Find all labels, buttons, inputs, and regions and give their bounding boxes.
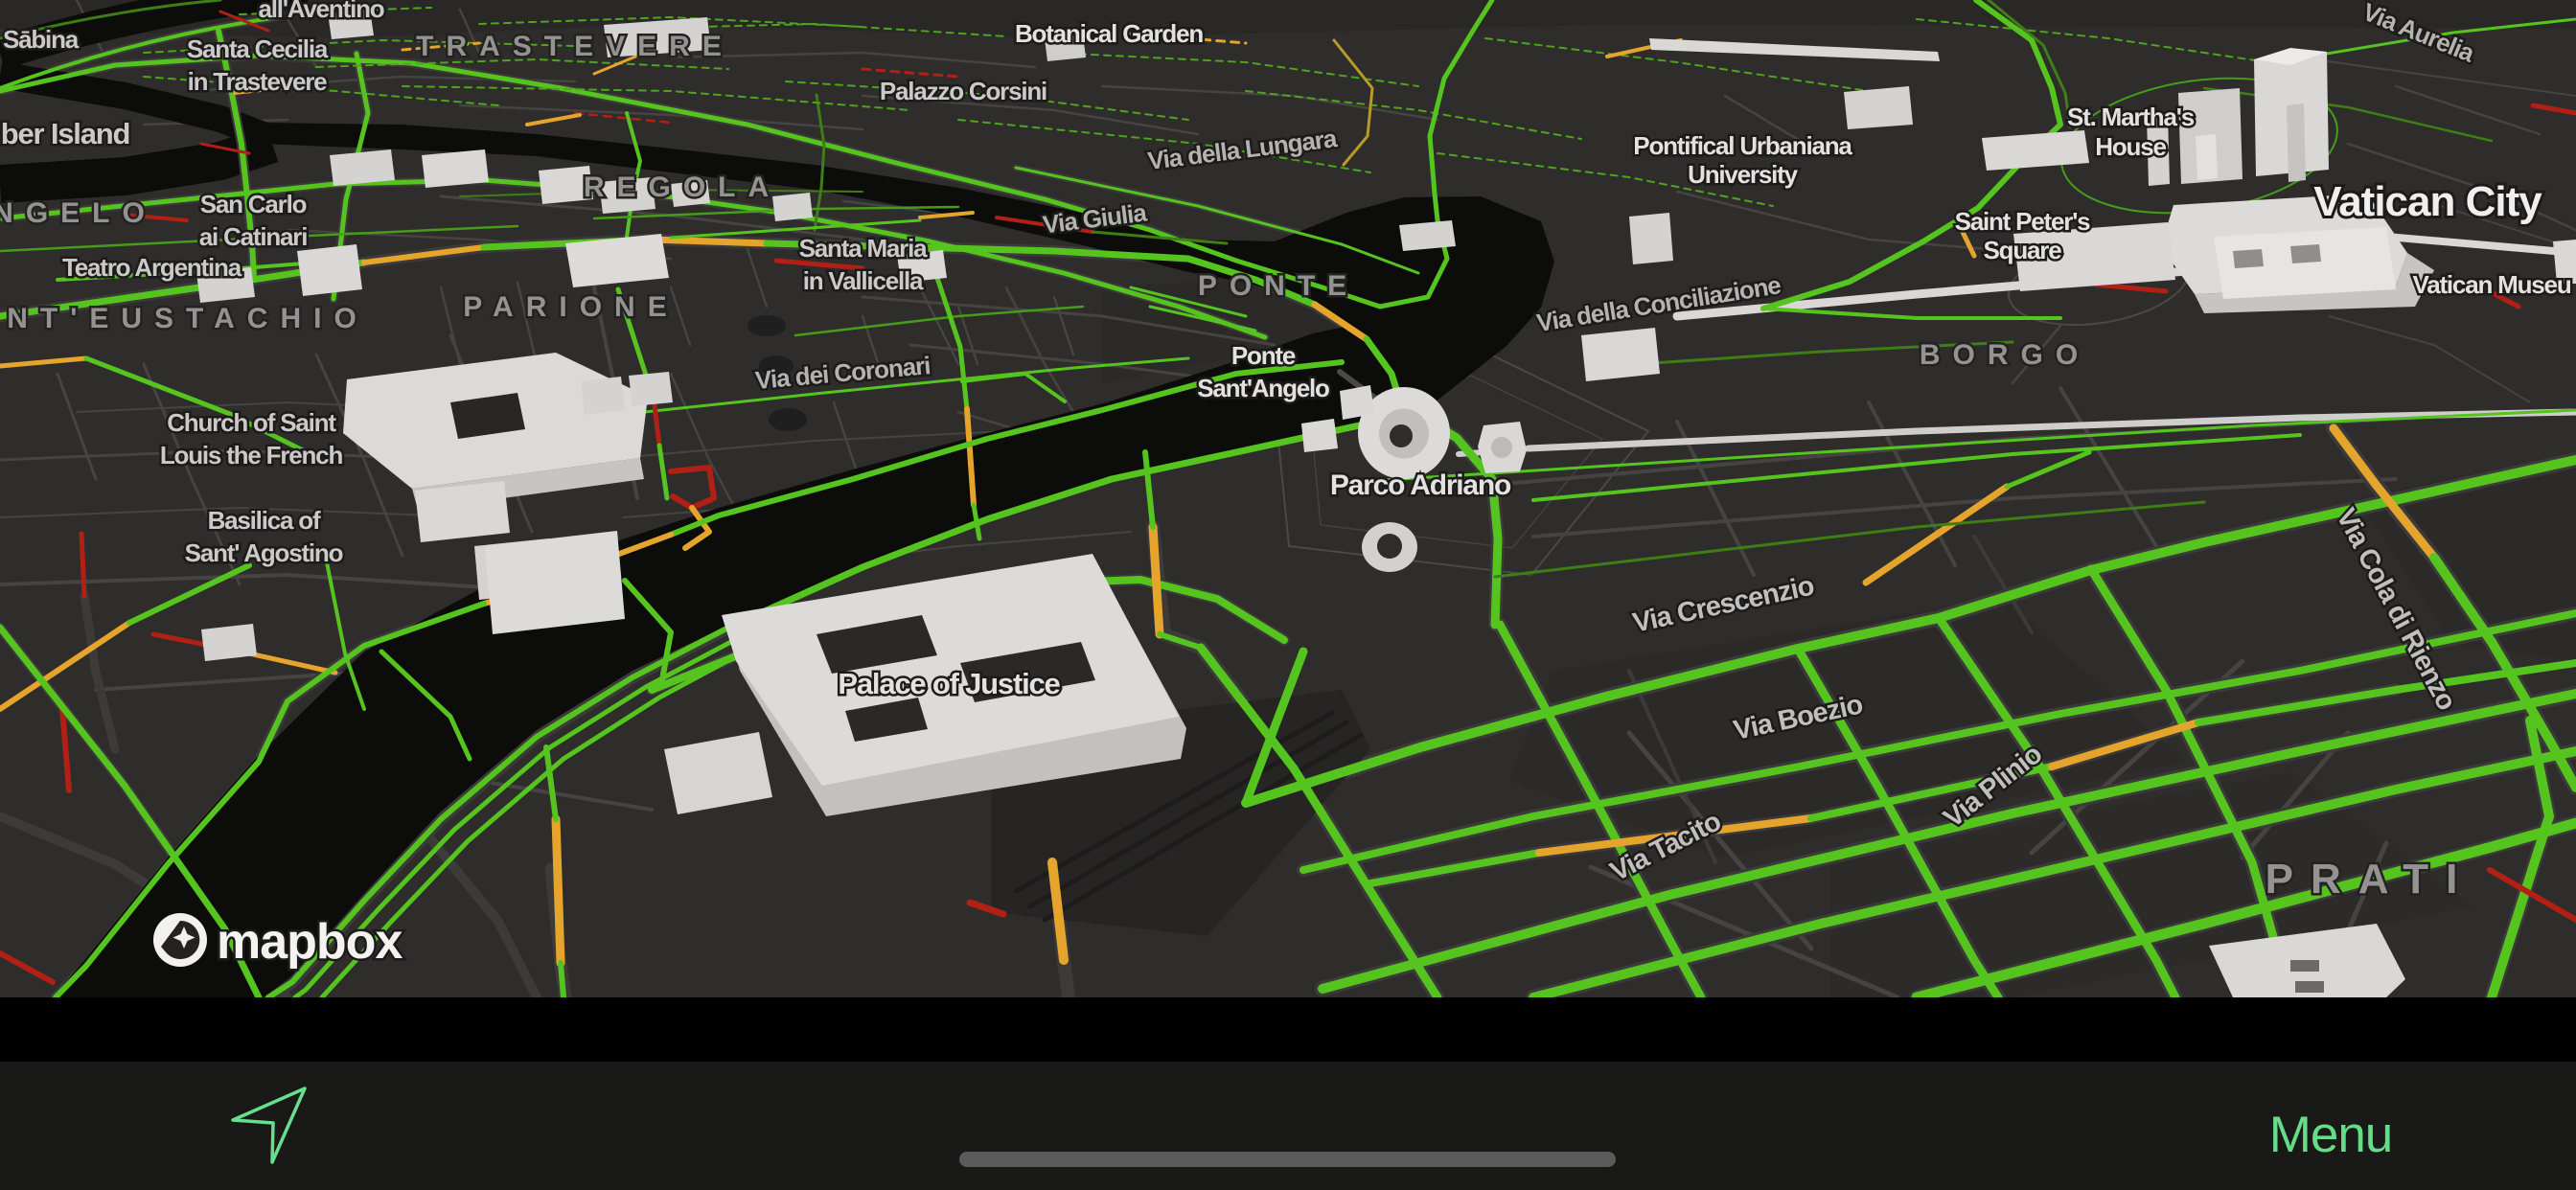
svg-text:PRATI: PRATI xyxy=(2265,856,2475,903)
svg-text:Sant'Angelo: Sant'Angelo xyxy=(1197,374,1329,402)
svg-text:in Vallicella: in Vallicella xyxy=(803,266,924,295)
svg-text:Saint Peter's: Saint Peter's xyxy=(1955,207,2091,236)
svg-text:in Trastevere: in Trastevere xyxy=(188,67,328,96)
svg-text:Vatican Museu: Vatican Museu xyxy=(2412,270,2570,299)
svg-text:Menu: Menu xyxy=(2269,1107,2393,1163)
svg-text:Ponte: Ponte xyxy=(1231,341,1296,370)
svg-text:San Carlo: San Carlo xyxy=(200,190,307,218)
svg-text:mapbox: mapbox xyxy=(217,914,402,970)
svg-text:Church of Saint: Church of Saint xyxy=(167,408,336,437)
svg-text:Palace of Justice: Palace of Justice xyxy=(838,667,1060,700)
svg-text:Louis the French: Louis the French xyxy=(160,441,343,469)
svg-text:PARIONE: PARIONE xyxy=(463,291,678,323)
svg-text:NGELO: NGELO xyxy=(0,197,157,229)
svg-text:Parco Adriano: Parco Adriano xyxy=(1330,469,1511,501)
svg-text:TRASTEVERE: TRASTEVERE xyxy=(416,31,734,62)
svg-text:PONTE: PONTE xyxy=(1198,270,1359,302)
svg-text:Basilica of: Basilica of xyxy=(208,506,321,535)
svg-text:University: University xyxy=(1688,160,1798,189)
svg-text:ai Catinari: ai Catinari xyxy=(199,222,308,251)
svg-text:BORGO: BORGO xyxy=(1920,339,2090,371)
svg-text:Santa Cecilia: Santa Cecilia xyxy=(187,34,329,63)
svg-text:Pontifical Urbaniana: Pontifical Urbaniana xyxy=(1633,131,1852,160)
svg-text:ber Island: ber Island xyxy=(1,117,129,150)
svg-text:Palazzo Corsini: Palazzo Corsini xyxy=(880,77,1046,105)
svg-text:Santa Maria: Santa Maria xyxy=(799,234,928,263)
svg-text:Sant' Agostino: Sant' Agostino xyxy=(185,538,343,567)
svg-text:Square: Square xyxy=(1984,236,2062,264)
svg-text:REGOLA: REGOLA xyxy=(584,172,781,203)
svg-text:Vatican City: Vatican City xyxy=(2313,178,2542,225)
svg-text:Sābina: Sābina xyxy=(3,25,80,54)
svg-text:St. Martha's: St. Martha's xyxy=(2067,103,2195,131)
svg-text:Teatro Argentina: Teatro Argentina xyxy=(62,253,242,282)
svg-text:all'Aventino: all'Aventino xyxy=(259,0,384,23)
svg-text:Botanical Garden: Botanical Garden xyxy=(1015,19,1203,48)
svg-text:NT'EUSTACHIO: NT'EUSTACHIO xyxy=(7,303,369,334)
svg-text:House: House xyxy=(2095,132,2166,161)
